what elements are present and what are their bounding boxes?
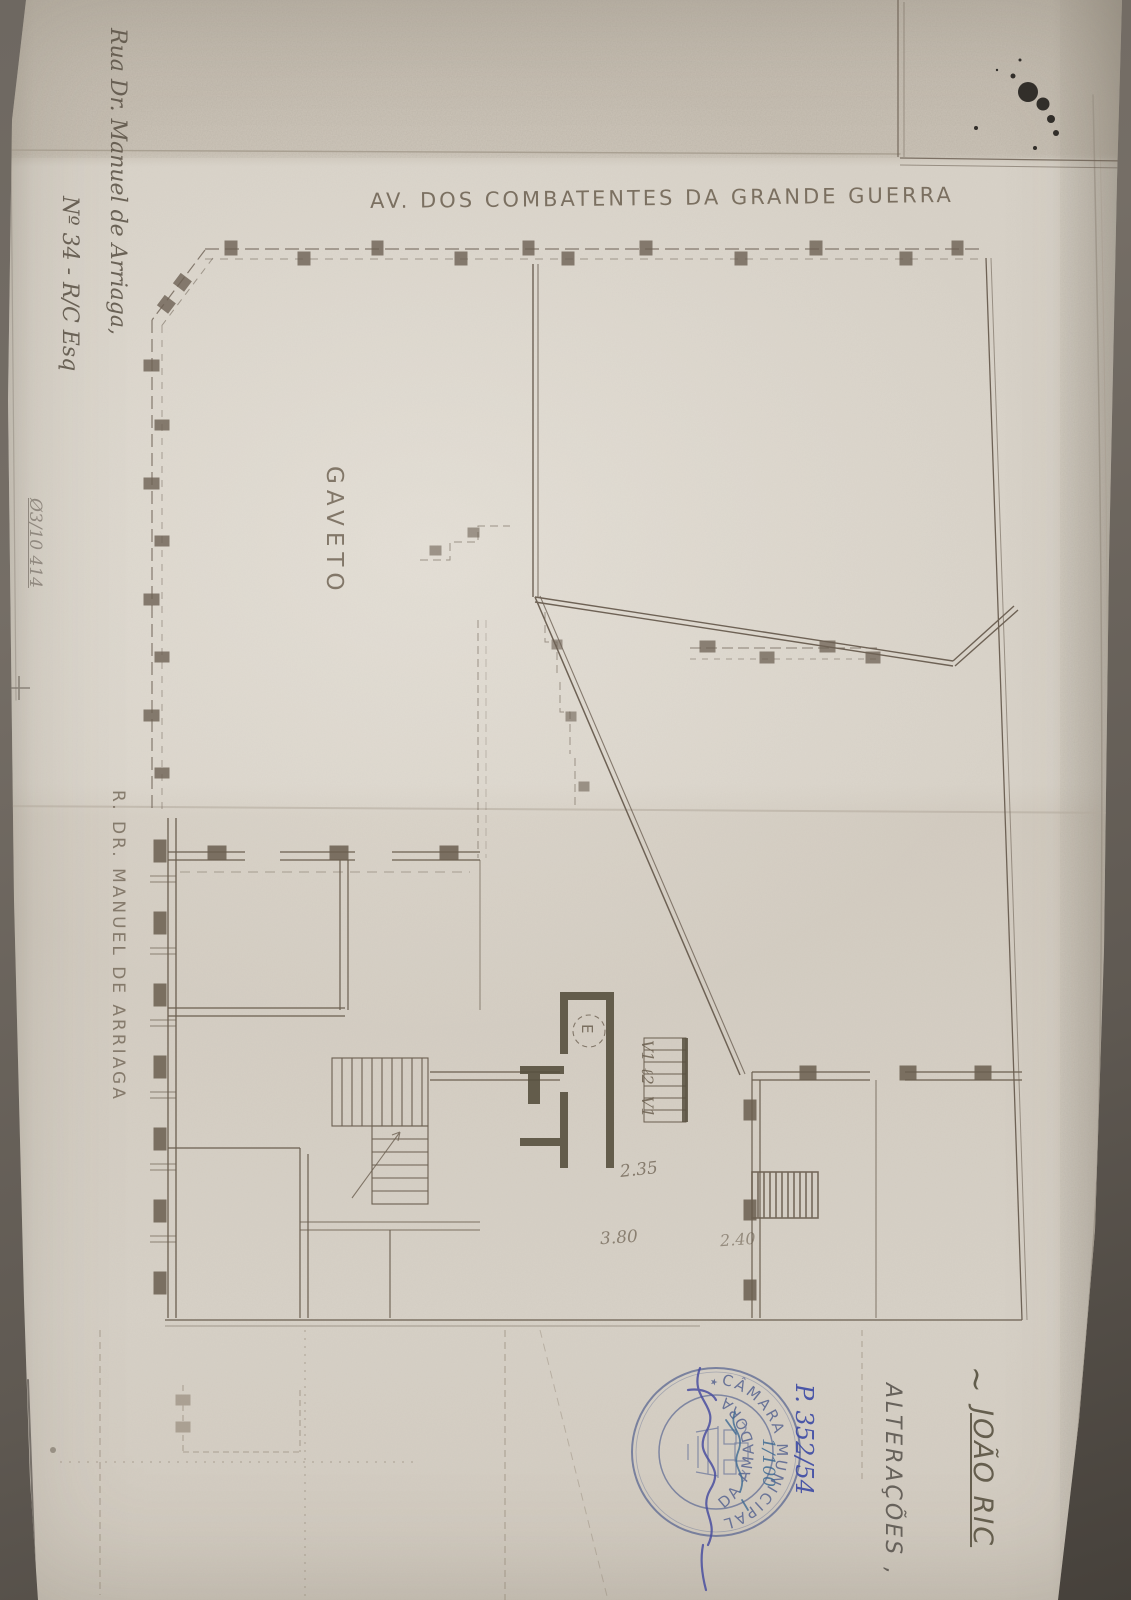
title-tilde: ~ [958,1366,996,1393]
label-v1-bottom: V1 [638,1096,657,1118]
project-title: JOÃO RIC [967,1408,998,1547]
address-line-2: Nº 34 - R/C Esq [57,196,82,371]
pencil-reference: Ø3/10 414 [25,498,45,588]
scanned-blueprint-photo: { "document": { "type_note": "scanned ar… [0,0,1131,1600]
address-line-1: Rua Dr. Manuel de Arriaga, [105,28,130,335]
label-v1-top: V1 [638,1040,657,1062]
paper-sheet: CÂMARA MUNICIPAL DA AMADORA ★ [0,0,1131,1600]
dimension-2-35: 2.35 [619,1158,659,1182]
dimension-2-40: 2.40 [719,1229,756,1250]
stamp-star-icon: ★ [708,1378,718,1386]
process-number-annotation: P. 352/54 [790,1384,818,1495]
floor-plan-drawing: CÂMARA MUNICIPAL DA AMADORA ★ [0,0,1131,1600]
elevator-label: E [578,1024,596,1033]
dimension-3-80: 3.80 [599,1227,638,1250]
street-label-left: R. DR. MANUEL DE ARRIAGA [108,790,128,1102]
scan-grain-texture [0,0,1131,1600]
scale-annotation: 1/100 [758,1438,778,1487]
label-l2: ℓ2 [637,1068,657,1085]
corner-label-gaveto: GAVETO [321,466,347,597]
alteracoes-label: ALTERAÇÕES , [880,1383,905,1577]
